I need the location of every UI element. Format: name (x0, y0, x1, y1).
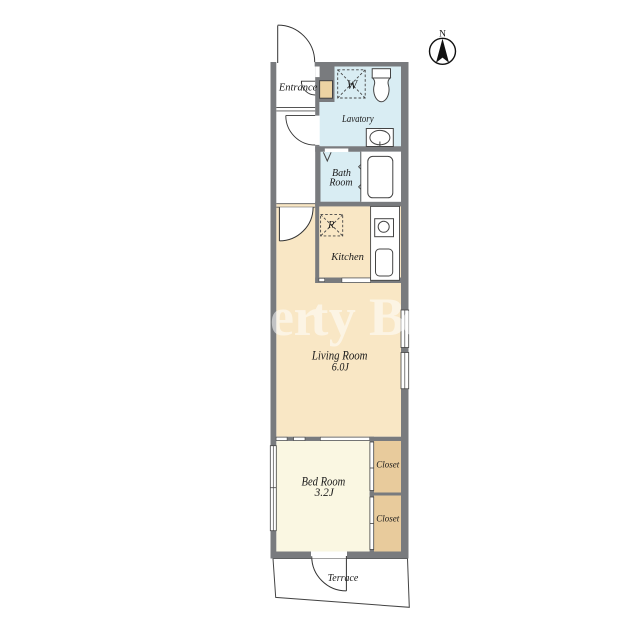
svg-text:t: t (310, 287, 328, 347)
svg-text:Entrance: Entrance (278, 82, 318, 93)
svg-text:Kitchen: Kitchen (330, 252, 364, 263)
svg-text:W: W (347, 78, 359, 92)
svg-text:N: N (439, 30, 446, 40)
svg-text:Closet: Closet (376, 460, 400, 470)
svg-text:Terrace: Terrace (328, 573, 359, 584)
svg-text:e: e (402, 287, 426, 347)
svg-text:R: R (327, 220, 335, 231)
svg-text:B: B (369, 287, 405, 347)
svg-text:e: e (270, 287, 294, 347)
svg-text:Closet: Closet (376, 513, 400, 523)
svg-text:6.0J: 6.0J (332, 360, 350, 374)
svg-text:Lavatory: Lavatory (341, 114, 374, 125)
svg-text:y: y (329, 287, 356, 347)
svg-text:Room: Room (328, 178, 352, 189)
svg-text:3.2J: 3.2J (314, 485, 335, 499)
